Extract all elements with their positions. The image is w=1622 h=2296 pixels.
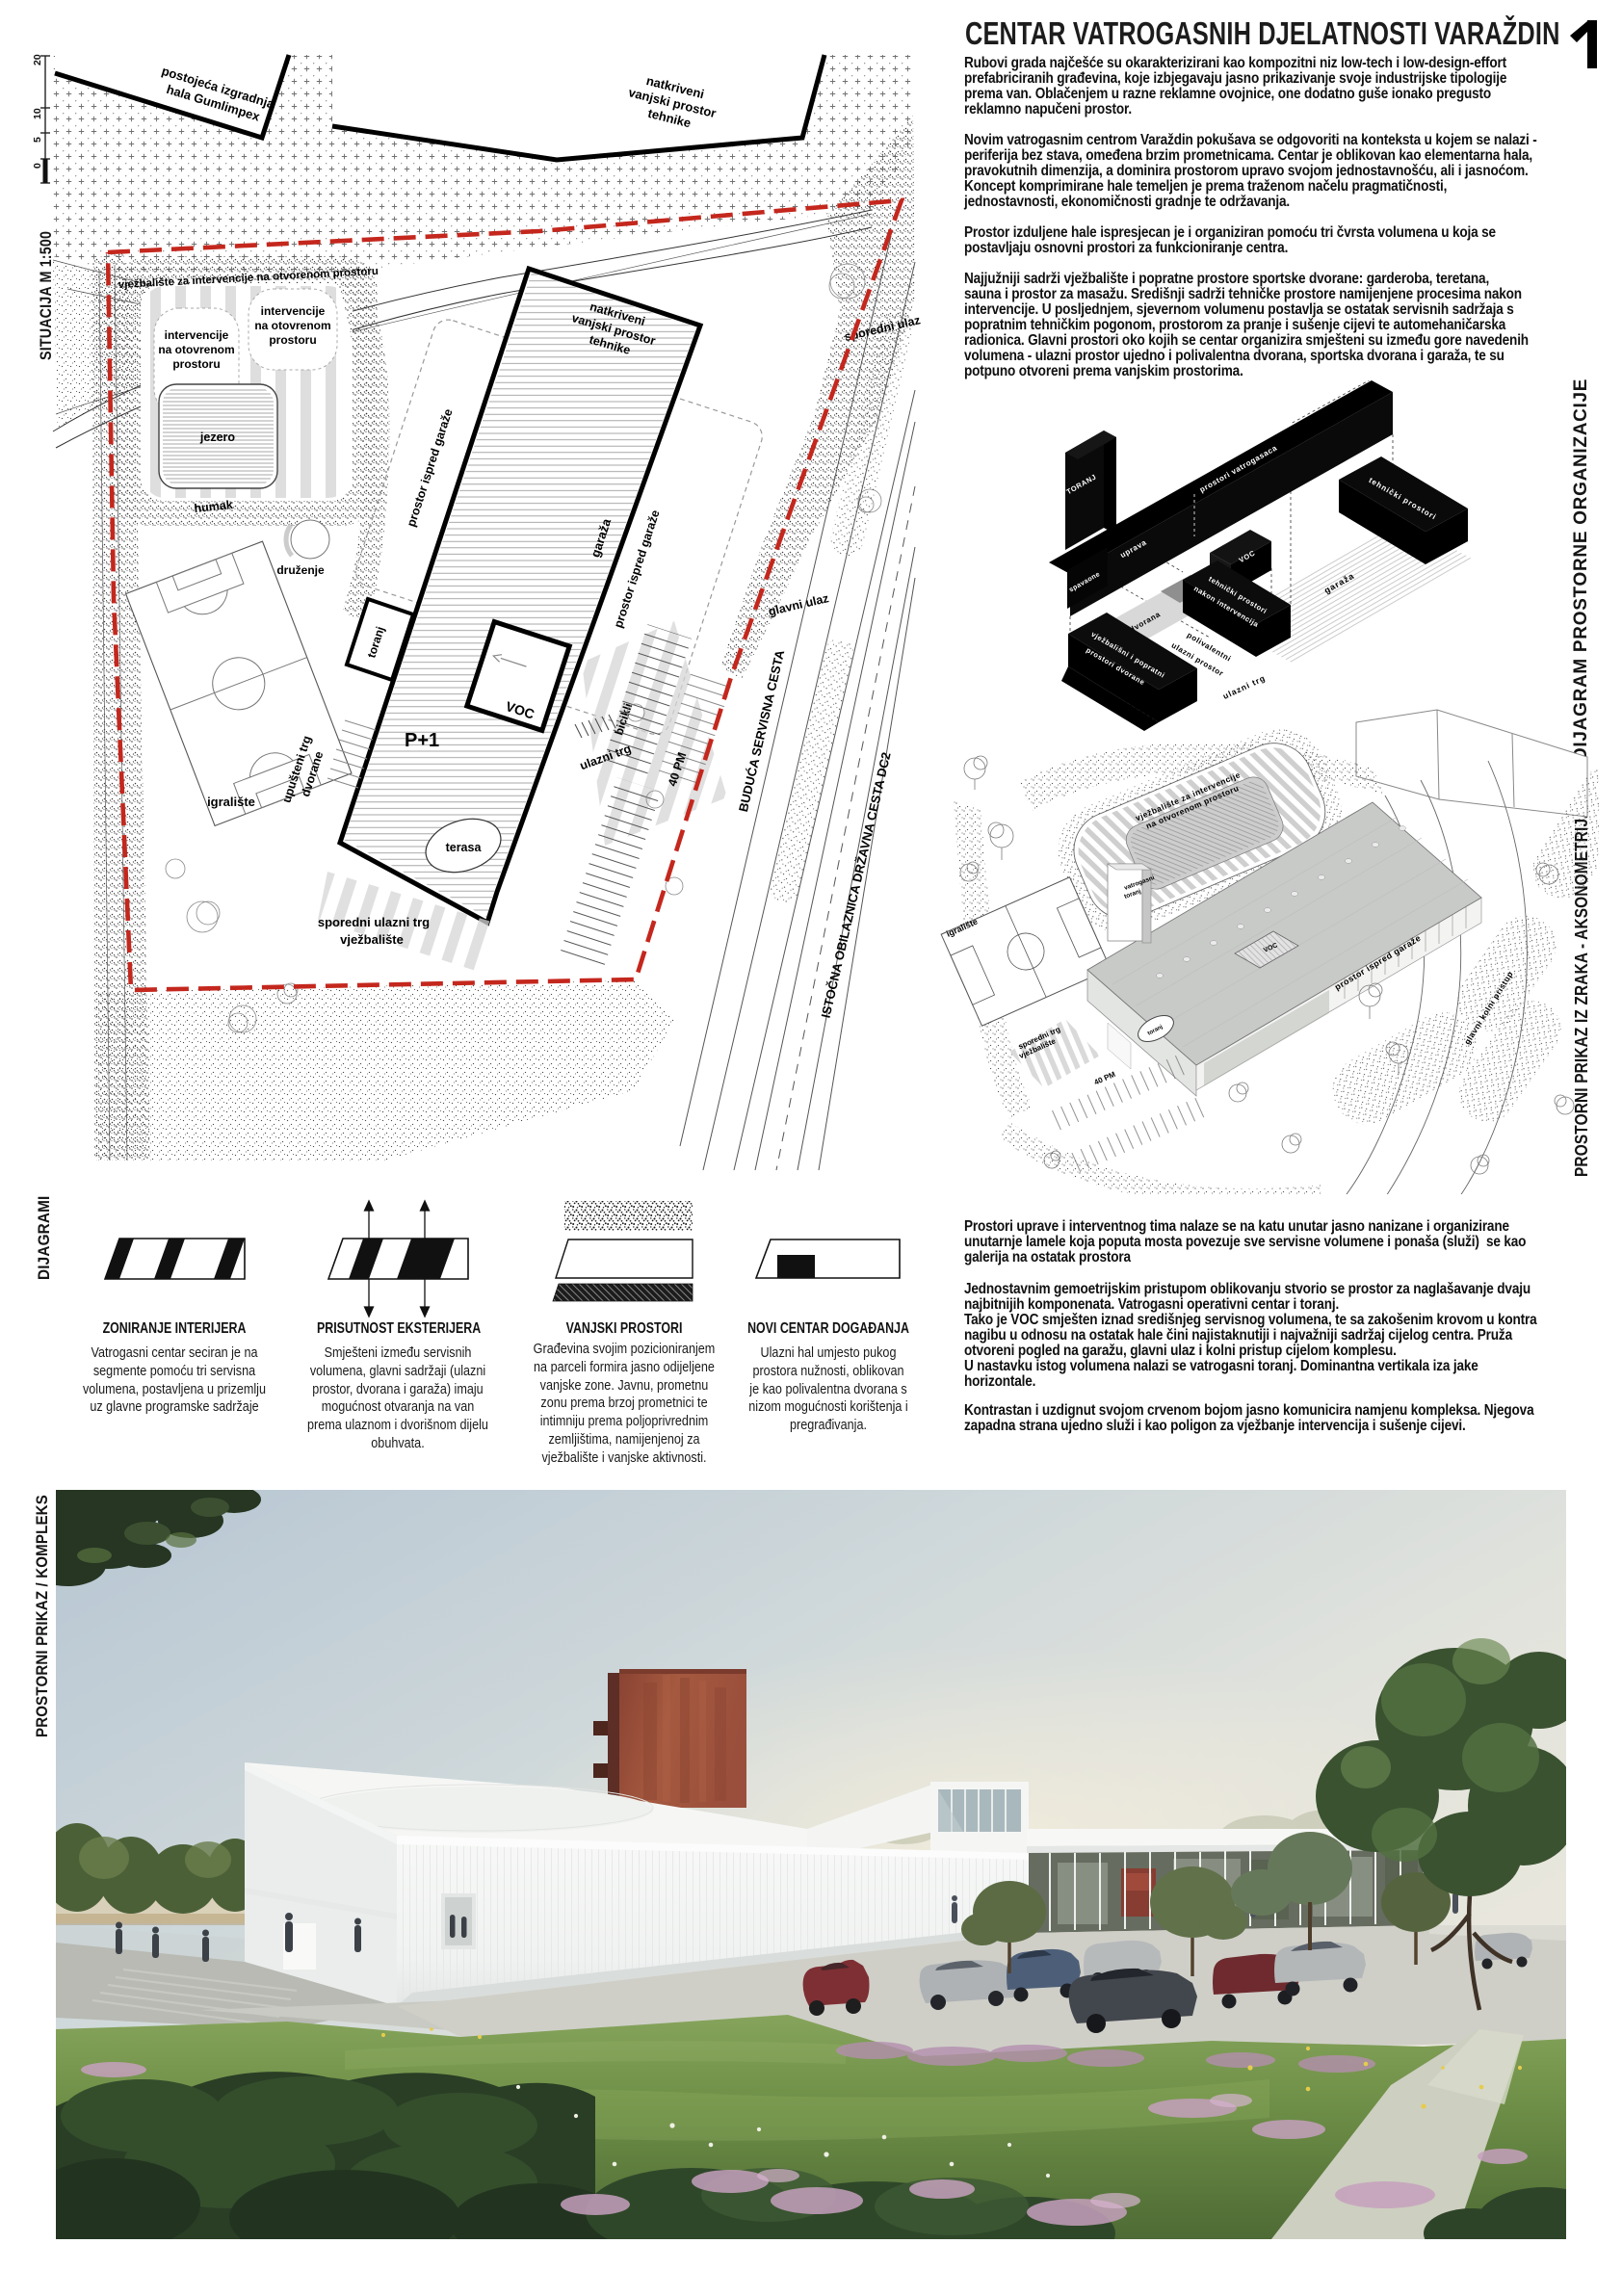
svg-text:10: 10 [32,108,43,119]
svg-text:prostoru: prostoru [172,357,220,371]
svg-text:na otovrenom: na otovrenom [254,319,330,332]
svg-text:terasa: terasa [446,841,483,854]
svg-text:druženje: druženje [276,563,325,577]
svg-text:5: 5 [32,137,43,143]
svg-text:intervencije: intervencije [165,328,229,342]
svg-text:igralište: igralište [207,795,255,809]
svg-text:0: 0 [32,163,43,169]
svg-text:na otovrenom: na otovrenom [158,343,234,356]
svg-text:20: 20 [32,54,43,65]
svg-text:ulazni trg: ulazni trg [1221,673,1268,701]
svg-text:vježbalište: vježbalište [340,932,404,947]
svg-text:jezero: jezero [199,430,235,444]
svg-text:intervencije: intervencije [261,304,326,318]
svg-text:ISTOČNA OBILAZNICA DRŽAVNA CES: ISTOČNA OBILAZNICA DRŽAVNA CESTA DC2 [819,751,894,1020]
svg-text:prostoru: prostoru [269,333,316,347]
svg-text:P+1: P+1 [405,730,439,751]
svg-text:sporedni ulazni trg: sporedni ulazni trg [318,915,430,929]
